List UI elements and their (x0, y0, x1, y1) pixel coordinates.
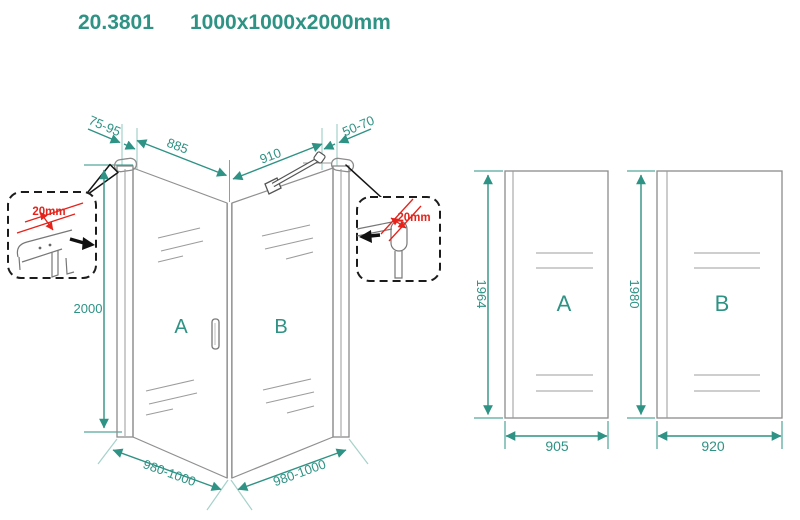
dim-height: 2000 (74, 301, 103, 316)
elevation-b-height: 1980 (627, 280, 642, 309)
dim-wall-gap-right: 50-70 (340, 112, 376, 139)
technical-drawing: 20.3801 1000x1000x2000mm (0, 0, 800, 520)
header: 20.3801 1000x1000x2000mm (78, 11, 391, 34)
panel-b-label: B (274, 316, 287, 338)
detail-right-adjust-value: 20mm (397, 212, 430, 224)
elevation-a-width: 905 (545, 438, 569, 454)
dim-glass-b-width: 910 (258, 145, 284, 167)
product-size: 1000x1000x2000mm (190, 11, 391, 34)
detail-callout-right: 20mm (357, 197, 440, 281)
elevation-b-label: B (715, 291, 730, 316)
door-handle (212, 319, 219, 349)
wall-profile-right (331, 158, 354, 437)
elevation-panel-a: A 1964 905 (474, 171, 608, 454)
drawing-page: 20.3801 1000x1000x2000mm (0, 0, 800, 520)
leader-flag-right (346, 165, 382, 198)
dim-wall-gap-left: 75-95 (87, 112, 123, 139)
perspective-view: 75-95 885 910 50-70 2000 980-1000 980-10… (74, 112, 382, 510)
elevation-panel-b: B 1980 920 (627, 171, 782, 454)
glass-panels (133, 168, 333, 478)
detail-left-adjust-value: 20mm (32, 206, 65, 218)
dim-overall-b: 980-1000 (271, 456, 328, 489)
detail-callout-left: 20mm (8, 192, 96, 278)
product-code: 20.3801 (78, 11, 154, 34)
elevation-a-height: 1964 (474, 280, 489, 309)
leader-flag-left (84, 165, 118, 198)
elevation-view: A 1964 905 B 1980 920 (474, 171, 782, 454)
elevation-b-width: 920 (701, 438, 725, 454)
elevation-a-label: A (557, 291, 572, 316)
panel-a-label: A (174, 316, 188, 338)
